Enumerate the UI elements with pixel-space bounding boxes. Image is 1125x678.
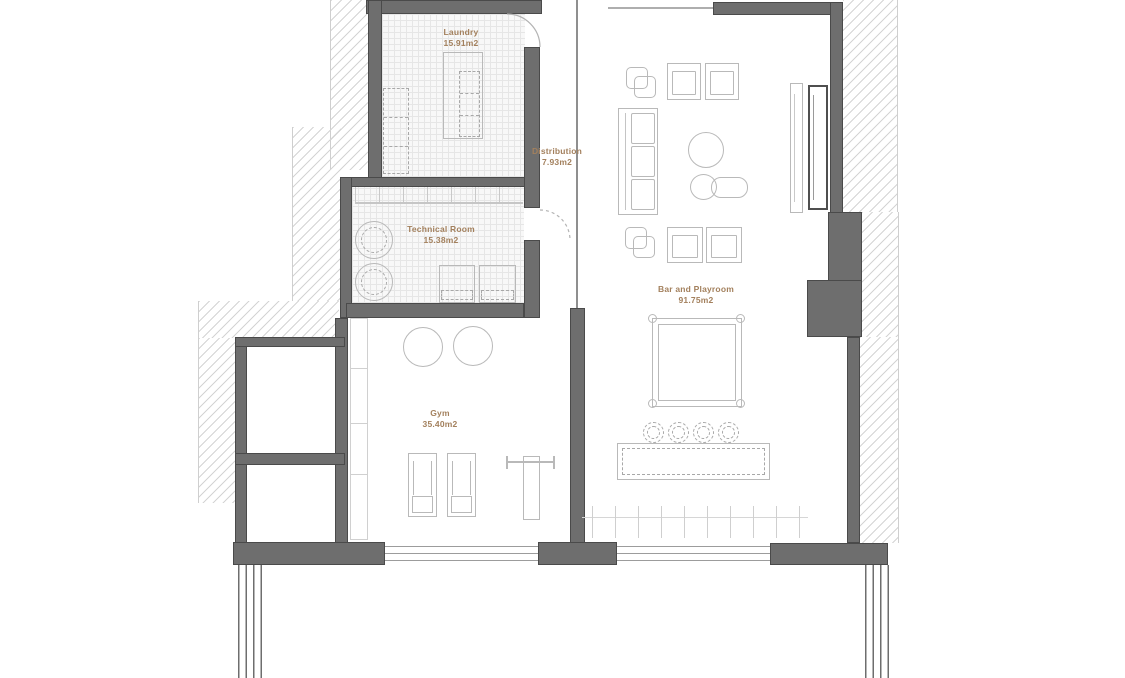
wall-corridor-lower (524, 240, 540, 318)
exercise-ball (453, 326, 493, 366)
bar-stool (693, 422, 714, 443)
pool-table-pocket (648, 399, 657, 408)
bar-stool (643, 422, 664, 443)
room-name: Gym (423, 408, 458, 419)
wall-bar-top (713, 2, 843, 15)
pool-table (652, 318, 742, 407)
window (808, 85, 828, 210)
wall-pier-southcenter (538, 542, 617, 565)
exercise-ball (403, 327, 443, 367)
bar-stool (668, 422, 689, 443)
room-label-bar-playroom: Bar and Playroom 91.75m2 (658, 284, 734, 306)
wall-corridor-upper (524, 47, 540, 208)
laundry-closet (383, 88, 409, 174)
terrain-hatch (843, 0, 898, 212)
pool-table-pocket (736, 314, 745, 323)
room-label-gym: Gym 35.40m2 (423, 408, 458, 430)
wall-gym-bar-divider (570, 308, 585, 543)
wall-technical-left (340, 177, 352, 318)
door-arcs (0, 0, 1125, 678)
bar-counter (617, 443, 770, 480)
wall-technical-bottom (346, 303, 524, 318)
wall-pier-southwest (233, 542, 385, 565)
south-glazing-bar (617, 546, 770, 562)
terrain-hatch (862, 212, 899, 337)
south-glazing-gym (385, 546, 538, 562)
wall-lightwell-top (235, 337, 345, 347)
room-area: 91.75m2 (658, 295, 734, 306)
treadmill (408, 453, 437, 517)
pool-table-pocket (736, 399, 745, 408)
wall-bar-right-mid (828, 212, 862, 281)
coffee-table (688, 132, 724, 168)
storage-cabinets-row (355, 187, 523, 204)
wall-bar-right-pier (807, 280, 862, 337)
armchair (705, 63, 739, 100)
terrain-hatch (198, 338, 236, 503)
barbell-plate (553, 456, 555, 469)
gym-shelving (350, 318, 368, 540)
wall-lightwell-divider (235, 453, 345, 465)
oval-table (711, 177, 748, 198)
tv-cabinet (790, 83, 803, 213)
bar-stool (718, 422, 739, 443)
wall-pier-southeast (770, 543, 888, 565)
water-tank (355, 221, 393, 259)
armchair (667, 227, 703, 263)
sofa (618, 108, 658, 215)
terrain-hatch (292, 127, 341, 301)
boiler-unit (479, 265, 516, 303)
boiler-unit (439, 265, 475, 303)
washer-dryer-island (443, 52, 483, 139)
room-name: Technical Room (407, 224, 475, 235)
wall-laundry-top (366, 0, 542, 14)
weight-bench (523, 456, 540, 520)
wall-laundry-left (368, 0, 382, 180)
retaining-wall-lines-west (238, 565, 262, 678)
wall-lightwell-left (235, 337, 247, 543)
armchair (667, 63, 701, 100)
water-tank (355, 263, 393, 301)
wall-bar-right-lower (847, 337, 860, 543)
room-area: 15.38m2 (407, 235, 475, 246)
room-name: Bar and Playroom (658, 284, 734, 295)
wall-bar-right-upper (830, 2, 843, 213)
pool-table-pocket (648, 314, 657, 323)
room-label-distribution: Distribution 7.93m2 (532, 146, 582, 168)
treadmill (447, 453, 476, 517)
side-table (634, 76, 656, 98)
terrain-hatch (198, 301, 339, 338)
room-area: 15.91m2 (444, 38, 479, 49)
room-area: 7.93m2 (532, 157, 582, 168)
terrain-hatch (860, 337, 899, 543)
armchair (706, 227, 742, 263)
room-area: 35.40m2 (423, 419, 458, 430)
room-name: Laundry (444, 27, 479, 38)
barbell-plate (506, 456, 508, 469)
room-label-laundry: Laundry 15.91m2 (444, 27, 479, 49)
overhead-beam-line (608, 7, 713, 9)
wall-gym-left (335, 318, 348, 543)
side-table (633, 236, 655, 258)
wall-technical-top (340, 177, 525, 187)
technical-door-arc (540, 210, 570, 240)
floor-plan-canvas: Laundry 15.91m2 Distribution 7.93m2 Tech… (0, 0, 1125, 678)
island-appliance-stack (459, 71, 480, 137)
ceiling-joist-ticks (592, 506, 804, 538)
room-label-technical-room: Technical Room 15.38m2 (407, 224, 475, 246)
room-name: Distribution (532, 146, 582, 157)
retaining-wall-lines-east (865, 565, 889, 678)
